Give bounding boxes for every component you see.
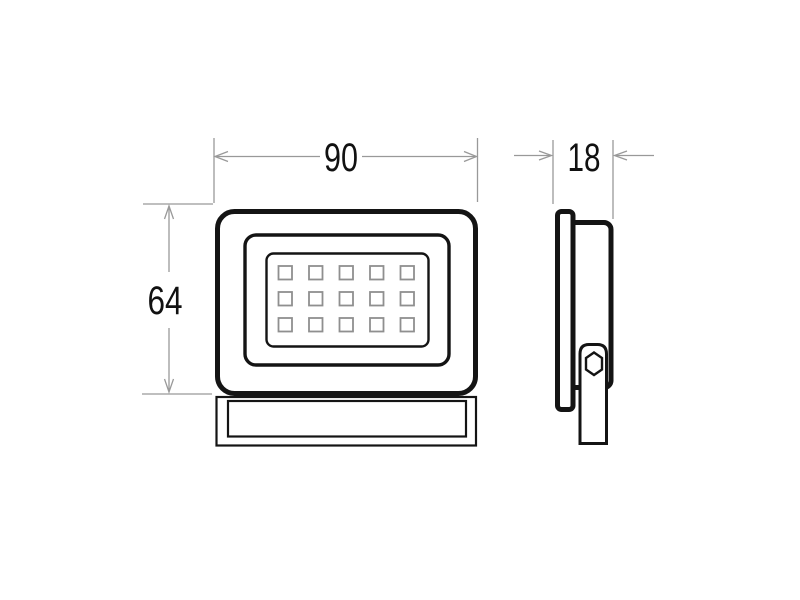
led-chip — [401, 318, 415, 332]
led-chip — [309, 318, 323, 332]
front-view — [217, 212, 477, 446]
led-chip — [309, 266, 323, 280]
technical-drawing-page: 90 64 18 — [0, 0, 800, 600]
front-bracket-inner — [228, 401, 466, 437]
led-chip — [279, 292, 293, 306]
side-view — [558, 212, 612, 444]
bolt-hexagon-icon — [586, 353, 602, 376]
led-chip — [309, 292, 323, 306]
dim-height: 64 — [142, 204, 213, 394]
dim-depth-label: 18 — [568, 136, 601, 180]
led-chip — [279, 266, 293, 280]
dim-height-label: 64 — [148, 279, 183, 323]
led-chip — [340, 292, 354, 306]
dim-width: 90 — [214, 136, 478, 203]
led-chip — [401, 266, 415, 280]
side-front-plate — [558, 212, 574, 410]
dim-width-label: 90 — [324, 136, 358, 180]
led-chip — [340, 266, 354, 280]
dim-depth: 18 — [514, 136, 654, 219]
led-chip — [401, 292, 415, 306]
led-chip — [370, 292, 384, 306]
led-chip — [340, 318, 354, 332]
led-chip — [370, 266, 384, 280]
floodlight-dimension-drawing: 90 64 18 — [0, 0, 800, 600]
led-chip — [370, 318, 384, 332]
led-chip — [279, 318, 293, 332]
